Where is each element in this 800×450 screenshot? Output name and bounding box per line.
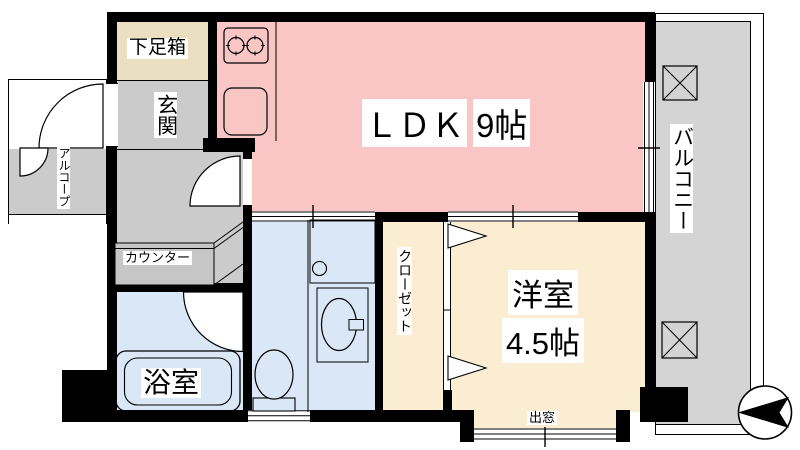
entrance-label: 玄関 bbox=[154, 92, 177, 138]
western-room-size: 4.5帖 bbox=[502, 318, 584, 363]
counter-label: カウンター bbox=[123, 251, 192, 265]
washing-machine-drain bbox=[313, 262, 327, 276]
entrance-main-door-swing bbox=[39, 84, 103, 148]
bathroom-door-swing bbox=[184, 292, 244, 352]
western-room-name: 洋室 bbox=[508, 270, 578, 315]
closet-label: クローゼット bbox=[397, 247, 412, 335]
sanitary-window-lines bbox=[248, 411, 310, 421]
bathroom-label: 浴室 bbox=[141, 368, 201, 398]
western-room-label: 洋室 4.5帖 bbox=[455, 270, 631, 363]
floor-plan: 下足箱 玄関 ＬＤＫ 9帖 洋室 4.5帖 クローゼット カウンター 浴室 バル… bbox=[0, 0, 800, 450]
washing-machine-space bbox=[310, 220, 375, 283]
stove-burner-right bbox=[247, 38, 263, 54]
stove-burner-left bbox=[228, 38, 244, 54]
corridor-ldk-door-swing bbox=[190, 156, 240, 206]
shoe-box-label: 下足箱 bbox=[127, 38, 188, 59]
alcove-label: アルコープ bbox=[57, 145, 70, 209]
bay-window-label: 出窓 bbox=[527, 411, 557, 425]
kitchen-sink-icon bbox=[224, 88, 267, 135]
ldk-label: ＬＤＫ 9帖 bbox=[362, 99, 530, 147]
toilet-bowl bbox=[255, 350, 293, 399]
balcony-window-glazing-lines bbox=[645, 82, 654, 212]
ldk-name: ＬＤＫ bbox=[362, 99, 467, 147]
washbasin-faucet bbox=[349, 320, 364, 331]
balcony-label: バルコニー bbox=[670, 124, 693, 233]
toilet-base bbox=[253, 398, 295, 411]
ldk-size: 9帖 bbox=[473, 99, 530, 147]
entrance-child-door-swing bbox=[20, 148, 48, 176]
closet-door-arrow-top bbox=[448, 224, 486, 248]
